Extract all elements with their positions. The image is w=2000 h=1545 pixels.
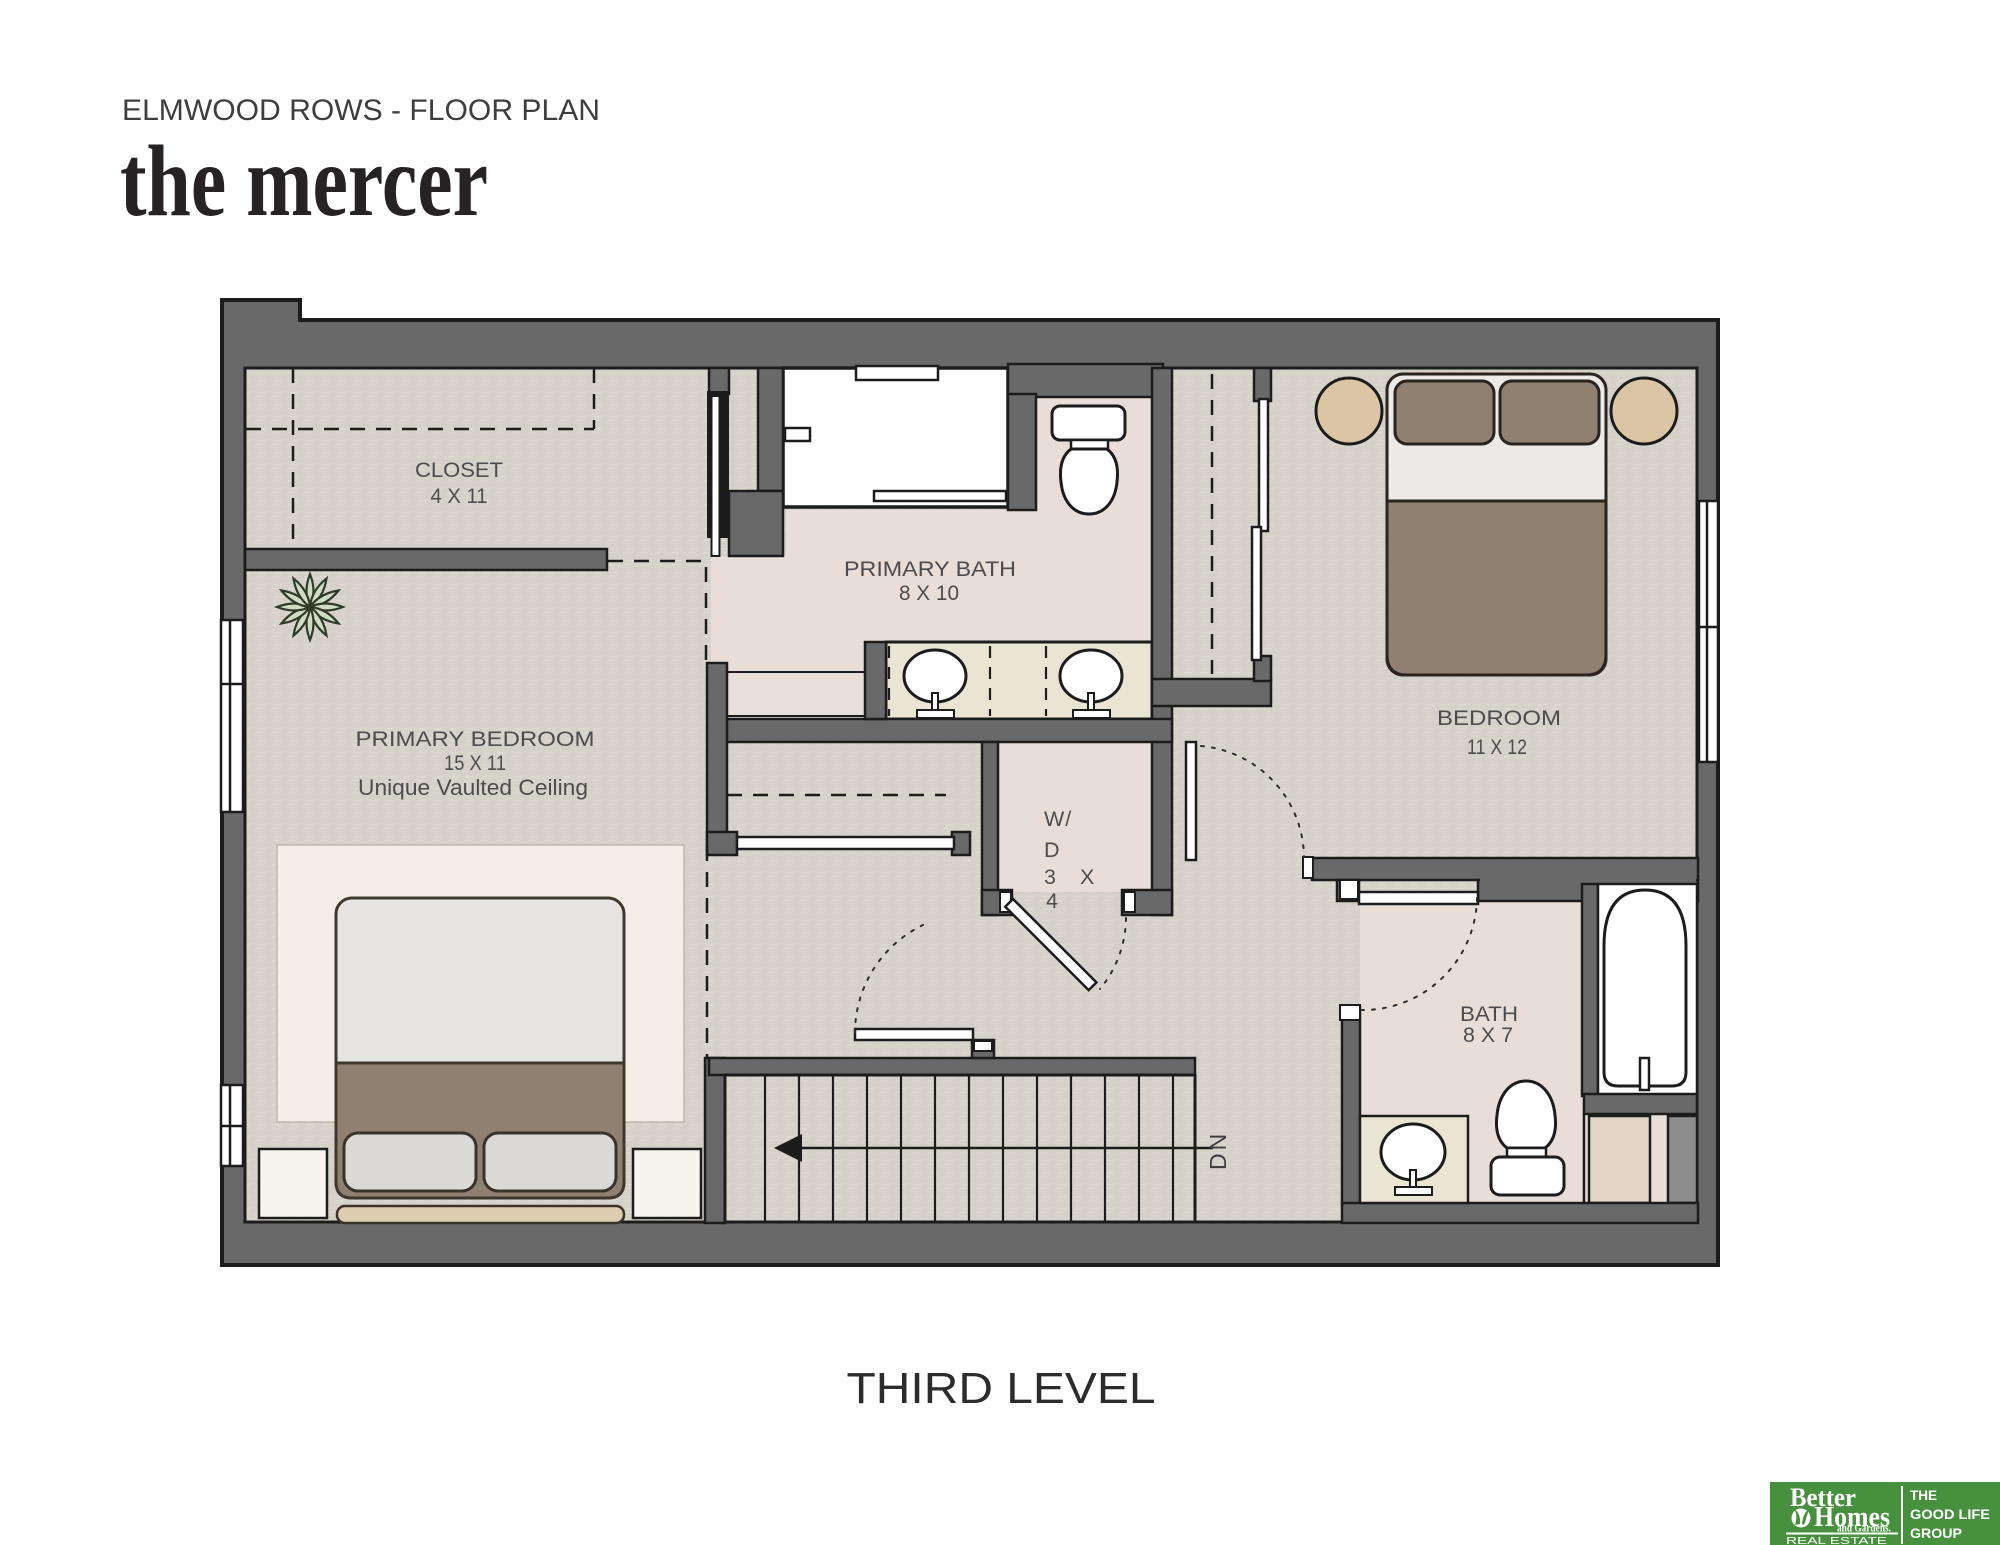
svg-text:15 X 11: 15 X 11 (444, 751, 506, 775)
svg-text:REAL ESTATE: REAL ESTATE (1786, 1535, 1887, 1545)
svg-text:8 X 7: 8 X 7 (1463, 1023, 1513, 1047)
svg-text:GOOD LIFE: GOOD LIFE (1910, 1506, 1990, 1522)
svg-text:CLOSET: CLOSET (415, 458, 503, 482)
svg-text:X: X (1080, 865, 1095, 889)
svg-text:PRIMARY BATH: PRIMARY BATH (844, 557, 1016, 581)
svg-text:11 X 12: 11 X 12 (1467, 735, 1527, 759)
svg-text:the mercer: the mercer (120, 125, 488, 238)
svg-text:4 X 11: 4 X 11 (431, 484, 488, 508)
svg-text:Unique Vaulted Ceiling: Unique Vaulted Ceiling (358, 775, 588, 800)
svg-text:THIRD LEVEL: THIRD LEVEL (847, 1364, 1156, 1413)
svg-text:D: D (1044, 838, 1061, 862)
svg-text:4: 4 (1046, 889, 1059, 913)
svg-text:ELMWOOD ROWS - FLOOR PLAN: ELMWOOD ROWS - FLOOR PLAN (122, 94, 600, 127)
svg-text:THE: THE (1910, 1487, 1937, 1503)
svg-text:BEDROOM: BEDROOM (1437, 706, 1561, 730)
svg-text:W/: W/ (1044, 807, 1072, 831)
svg-text:PRIMARY BEDROOM: PRIMARY BEDROOM (356, 727, 595, 751)
svg-text:GROUP: GROUP (1910, 1525, 1962, 1541)
svg-text:3: 3 (1044, 865, 1057, 889)
svg-text:8 X 10: 8 X 10 (899, 581, 959, 605)
svg-text:DN: DN (1205, 1131, 1231, 1170)
